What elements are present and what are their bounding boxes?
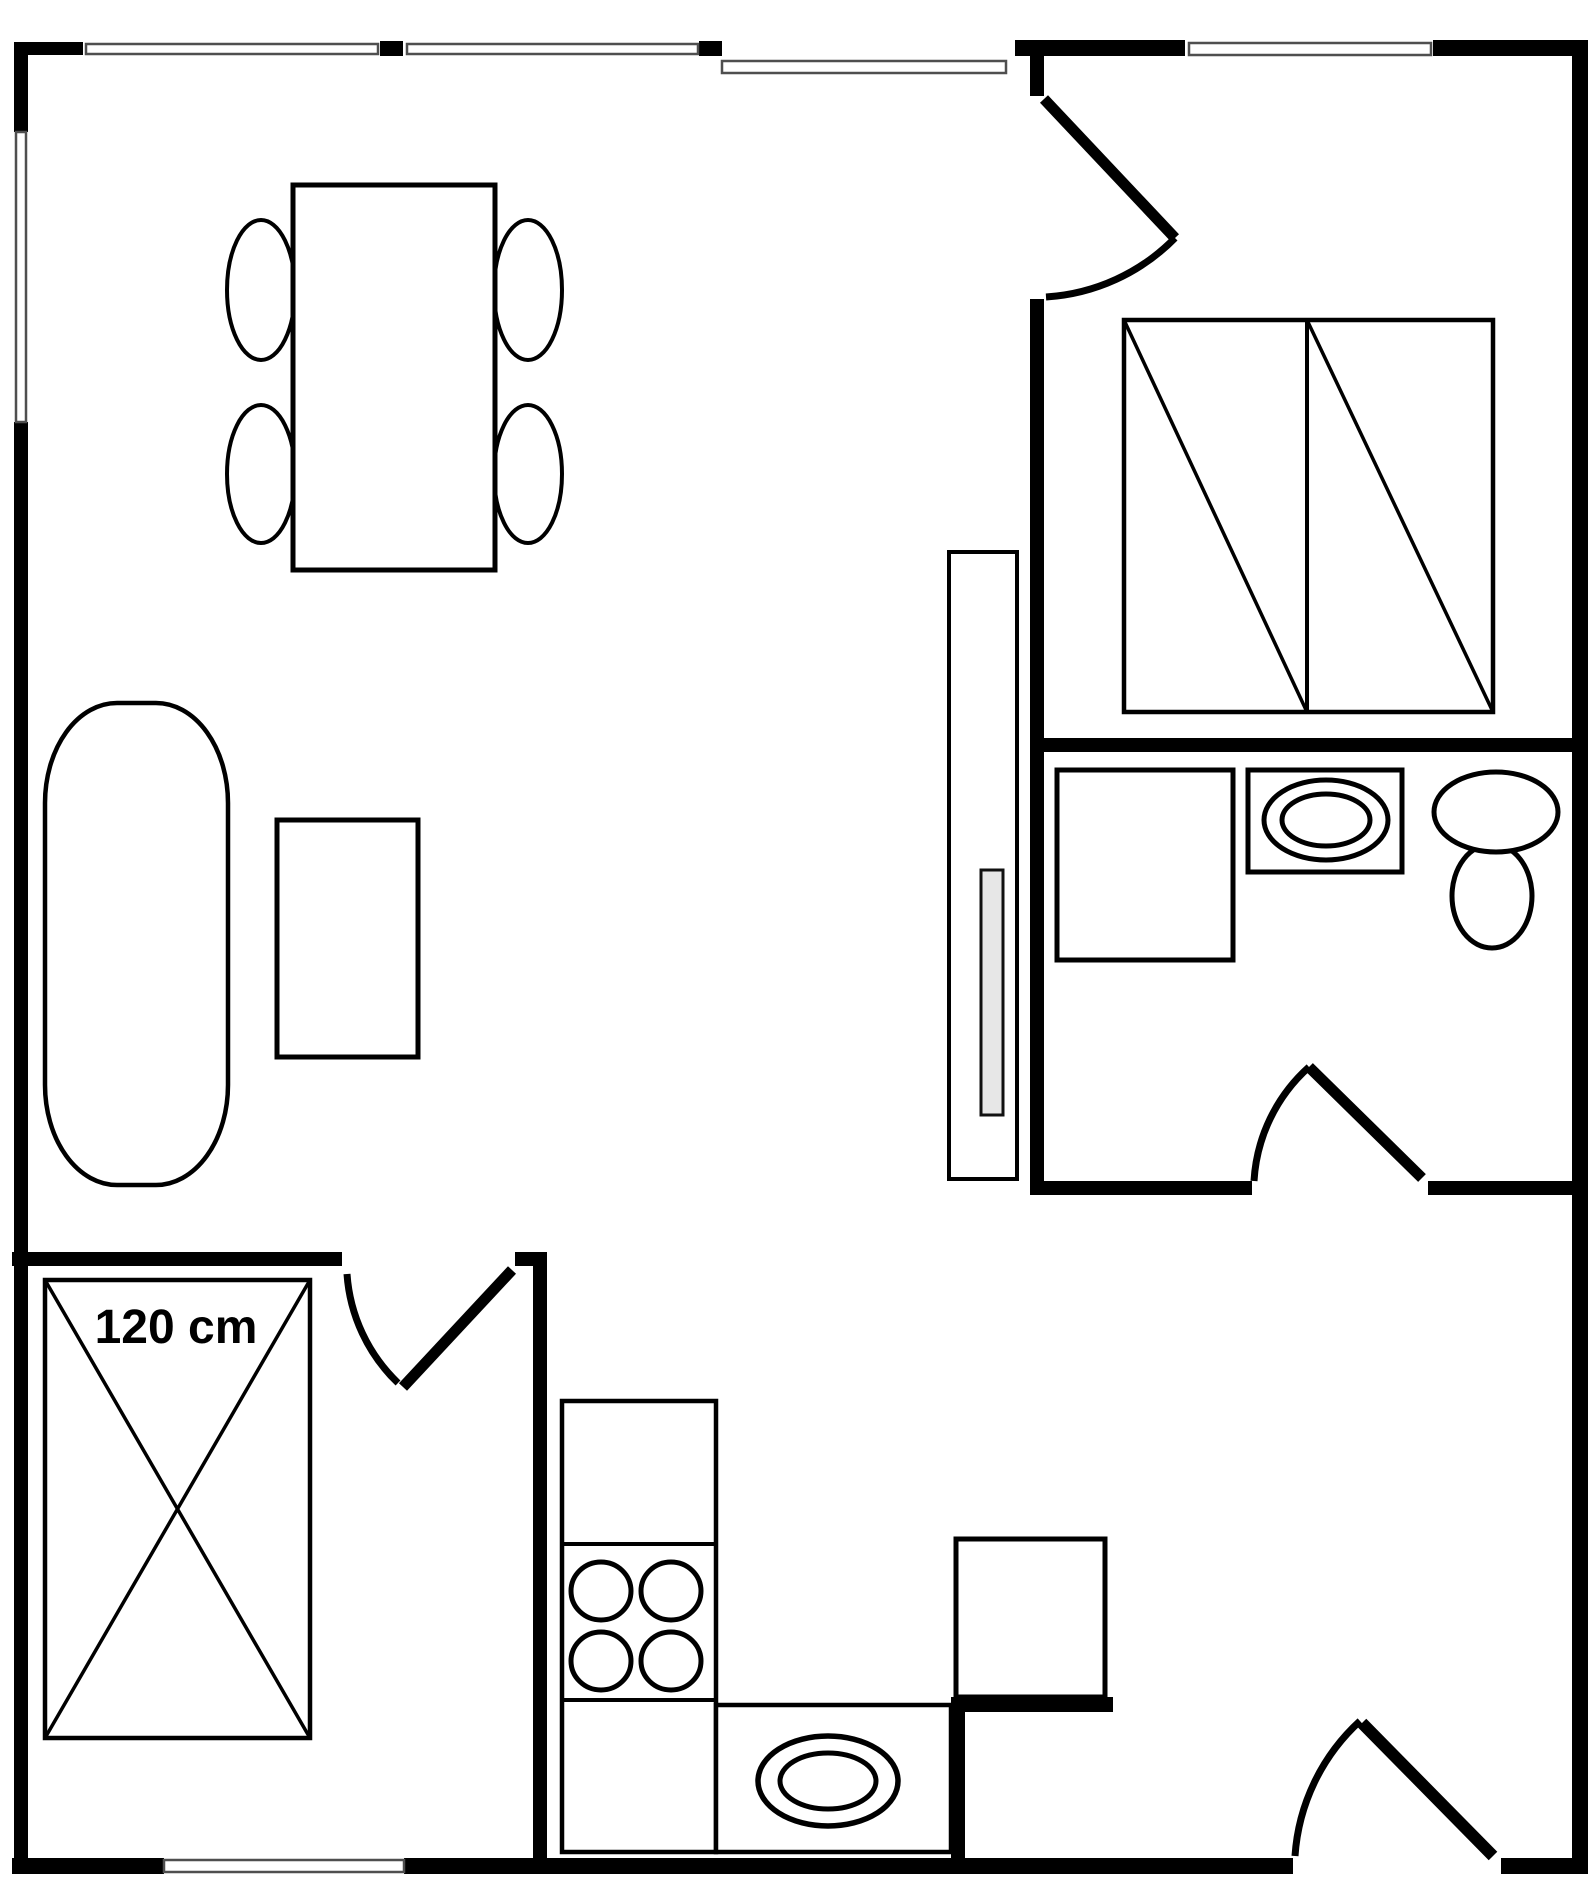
wall-right — [1572, 40, 1588, 1874]
bathroom-door-leaf — [1309, 1067, 1422, 1178]
small-bedroom: 120 cm — [45, 1280, 310, 1738]
window-top-1 — [86, 44, 378, 54]
kitchen-counter-horizontal — [716, 1705, 951, 1852]
wardrobe-handle — [981, 870, 1003, 1115]
wall-bedroom-divider-stub — [1030, 56, 1044, 96]
window-top-recessed — [722, 61, 1006, 73]
toilet — [1434, 772, 1558, 948]
bedroom-door — [1044, 99, 1175, 297]
dining-chair — [494, 405, 562, 543]
kitchen-counter-vertical — [562, 1401, 716, 1852]
dining-chair — [227, 220, 295, 360]
small-bedroom-door — [347, 1270, 512, 1387]
wall-small-bedroom-top — [12, 1252, 342, 1266]
bedroom-door-arc — [1046, 238, 1175, 297]
bathroom-door-arc — [1254, 1067, 1309, 1181]
bedroom — [1124, 320, 1493, 712]
small-bedroom-door-arc — [347, 1274, 398, 1383]
bathroom-sink — [1248, 770, 1402, 872]
wardrobe — [949, 552, 1017, 1179]
coffee-table — [277, 820, 418, 1057]
window-top-2 — [407, 44, 698, 54]
toilet-seat — [1434, 772, 1558, 852]
floor-plan: 120 cm — [0, 0, 1590, 1889]
wall-top-middle — [1015, 40, 1185, 56]
window-top-bedroom — [1189, 43, 1431, 55]
wall-bedroom-bathroom — [1030, 738, 1588, 752]
dining-area — [227, 185, 562, 570]
wall-small-bedroom-right — [533, 1252, 547, 1858]
wall-bottom-middle — [404, 1858, 1293, 1874]
dining-chair — [494, 220, 562, 360]
bathroom-door — [1254, 1067, 1422, 1181]
wall-bathroom-bottom-left — [1030, 1181, 1252, 1195]
wall-bathroom-bottom-right — [1428, 1181, 1588, 1195]
toilet-bowl — [1452, 844, 1532, 948]
shower — [1057, 770, 1233, 960]
wall-left-upper — [14, 42, 28, 132]
window-bottom — [164, 1860, 404, 1872]
bed-width-label: 120 cm — [95, 1301, 258, 1354]
kitchen-appliance — [956, 1539, 1105, 1697]
kitchen — [562, 1401, 1105, 1852]
living-area — [45, 552, 1017, 1185]
entry-door-arc — [1295, 1721, 1360, 1856]
window-left — [16, 132, 26, 422]
floor-plan-svg: 120 cm — [0, 0, 1590, 1889]
small-bedroom-door-leaf — [403, 1270, 512, 1387]
sofa — [45, 703, 228, 1185]
wall-top-post-2 — [699, 41, 722, 56]
wall-left-lower — [14, 422, 28, 1874]
dining-table — [293, 185, 495, 570]
entry-door — [1295, 1721, 1493, 1856]
bathroom-sink-counter — [1248, 770, 1402, 872]
wall-top-right — [1433, 40, 1588, 56]
wall-bottom-left — [12, 1858, 164, 1874]
bathroom — [1057, 770, 1558, 960]
bedroom-door-leaf — [1044, 99, 1175, 238]
wall-top-post-1 — [380, 41, 403, 56]
wall-bottom-right — [1501, 1858, 1588, 1874]
dining-chair — [227, 405, 295, 543]
entry-door-leaf — [1362, 1723, 1493, 1856]
